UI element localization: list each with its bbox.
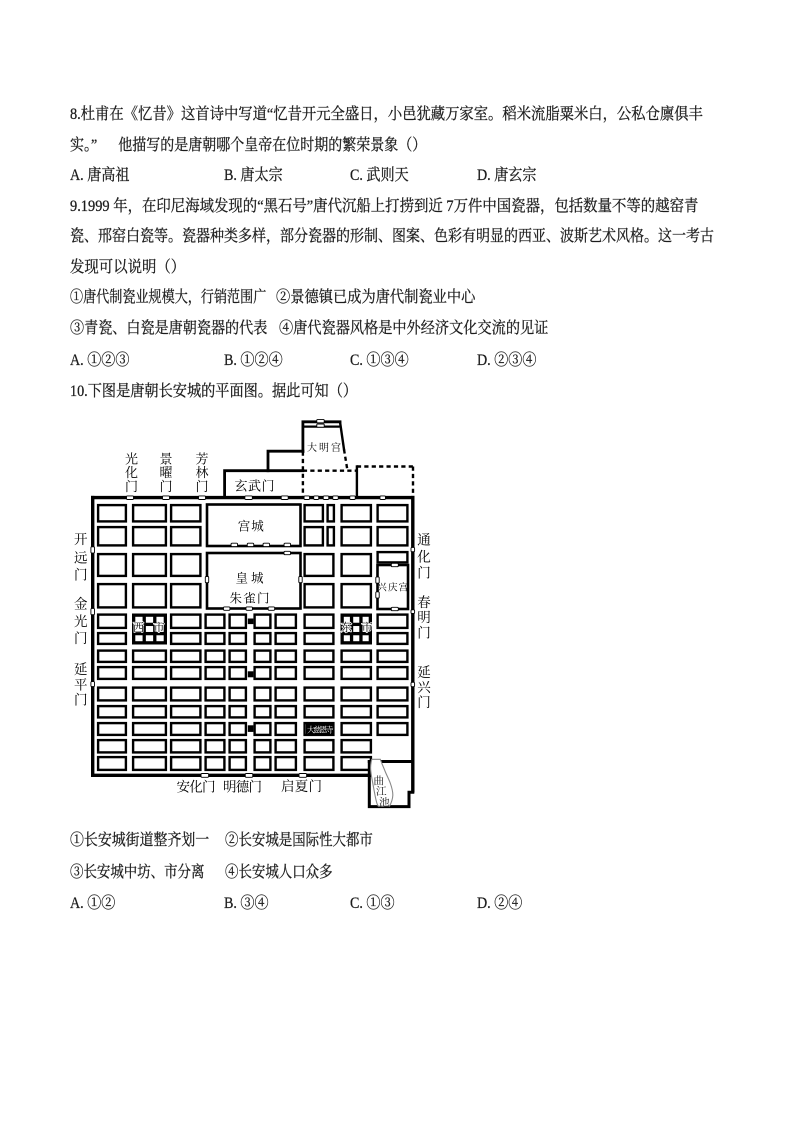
svg-text:门: 门 xyxy=(74,693,88,708)
svg-text:兴庆宫: 兴庆宫 xyxy=(377,582,408,594)
svg-text:玄武门: 玄武门 xyxy=(235,479,275,494)
svg-text:东: 东 xyxy=(341,621,352,634)
svg-text:曜: 曜 xyxy=(159,465,172,480)
svg-text:安化门: 安化门 xyxy=(177,780,216,795)
svg-text:延: 延 xyxy=(417,665,431,680)
svg-text:门: 门 xyxy=(417,695,431,710)
svg-text:市: 市 xyxy=(154,621,165,634)
svg-text:光: 光 xyxy=(74,613,88,629)
svg-text:延: 延 xyxy=(74,662,88,677)
svg-text:大慈恩寺: 大慈恩寺 xyxy=(307,724,334,734)
svg-text:金: 金 xyxy=(74,597,88,612)
svg-text:林: 林 xyxy=(195,465,208,480)
svg-text:门: 门 xyxy=(125,479,138,494)
svg-text:启夏门: 启夏门 xyxy=(281,779,322,794)
svg-text:门: 门 xyxy=(74,568,88,583)
svg-text:明: 明 xyxy=(417,610,431,625)
svg-text:池: 池 xyxy=(379,796,390,809)
svg-text:化: 化 xyxy=(125,465,138,480)
svg-text:开: 开 xyxy=(74,532,88,547)
svg-text:市: 市 xyxy=(362,621,373,634)
svg-text:门: 门 xyxy=(74,631,88,646)
svg-text:西: 西 xyxy=(133,621,144,634)
svg-text:大明宫: 大明宫 xyxy=(307,441,341,454)
svg-text:化: 化 xyxy=(417,549,431,564)
svg-text:江: 江 xyxy=(376,786,387,798)
svg-text:春: 春 xyxy=(417,595,431,610)
svg-text:门: 门 xyxy=(417,626,431,641)
svg-text:门: 门 xyxy=(159,479,172,494)
svg-text:兴: 兴 xyxy=(417,680,431,695)
svg-text:远: 远 xyxy=(74,551,88,566)
svg-text:门: 门 xyxy=(417,566,431,581)
svg-text:平: 平 xyxy=(74,677,88,692)
svg-text:通: 通 xyxy=(417,532,431,547)
svg-text:朱雀门: 朱雀门 xyxy=(230,590,270,605)
svg-text:曲: 曲 xyxy=(373,774,384,787)
svg-text:宫城: 宫城 xyxy=(238,520,264,534)
svg-text:门: 门 xyxy=(195,479,208,494)
svg-text:明德门: 明德门 xyxy=(223,780,262,795)
